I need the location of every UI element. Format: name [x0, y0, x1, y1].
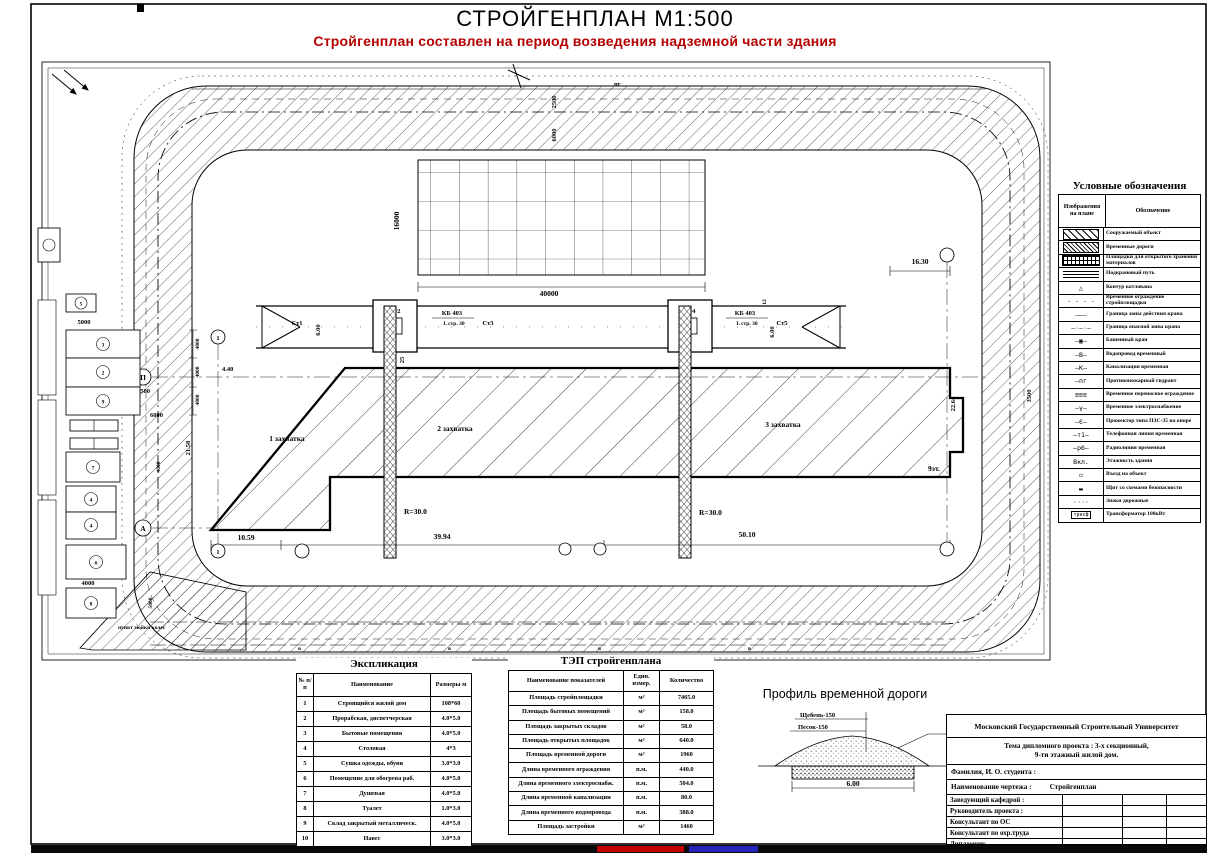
table-row: 8 Туалет 1.0*3.0: [297, 802, 471, 817]
dim-4000: 4000: [82, 580, 95, 587]
legend-symbol: —·—·—: [1059, 322, 1104, 334]
legend-table: Изображения на плане Обозначение Сооружа…: [1058, 194, 1201, 523]
project-theme: Тема дипломного проекта : 3-х секционный…: [947, 738, 1206, 765]
legend-label: Башенный кран: [1104, 335, 1200, 347]
table-row: Площадь бытовых помещений м² 158.0: [509, 706, 713, 720]
cell-indicator: Длина временного электроснабж.: [509, 778, 624, 791]
legend-label: Водопровод временный: [1104, 349, 1200, 361]
legend-label: Граница зоны действия крана: [1104, 308, 1200, 320]
cell-unit: п.м.: [624, 778, 660, 791]
col-quantity: Количество: [660, 671, 713, 691]
cell-name: Склад закрытый металлическ.: [314, 817, 431, 831]
table-row: 2 Прорабская, диспетчерская 4.0*5.0: [297, 712, 471, 727]
cell-quantity: 1960: [660, 749, 713, 762]
dim-4000: 4000: [195, 394, 201, 405]
col-indicator: Наименование показателей: [509, 671, 624, 691]
axis-bubble: [594, 543, 606, 555]
cell-size: 4.0*5.0: [431, 727, 471, 741]
cell-name: Строящийся жилой дом: [314, 697, 431, 711]
legend-symbol: [1059, 241, 1104, 253]
legend-label: Граница опасной зоны крана: [1104, 322, 1200, 334]
signature-field: [1063, 795, 1123, 805]
cell-quantity: 504.0: [660, 778, 713, 791]
legend-label: Канализация временная: [1104, 362, 1200, 374]
page-title: СТРОЙГЕНПЛАН М1:500: [0, 6, 1190, 32]
legend-label: Щит со схемами безопасности: [1104, 482, 1200, 494]
water-line-mark: в: [448, 646, 451, 652]
cell-unit: м²: [624, 692, 660, 705]
table-row: Площадь закрытых складов м² 58.0: [509, 721, 713, 735]
site-building-number: 7: [92, 466, 95, 472]
legend-symbol: Вкл.: [1059, 456, 1104, 468]
legend-symbol: ····: [1059, 496, 1104, 508]
legend-row: Сооружаемый объект: [1059, 228, 1200, 241]
col-name: Наименование: [314, 674, 431, 696]
legend-row: —пг Противопожарный гидрант: [1059, 375, 1200, 388]
legend-row: ▬ Щит со схемами безопасности: [1059, 482, 1200, 495]
dim-5000: 5000: [78, 319, 91, 326]
legend-row: ▭ Въезд на объект: [1059, 469, 1200, 482]
cell-name: Столовая: [314, 742, 431, 756]
cell-number: 3: [297, 727, 314, 741]
cell-number: 5: [297, 757, 314, 771]
cell-indicator: Длина временной канализации: [509, 792, 624, 805]
table-row: Площадь стройплощадки м² 7465.0: [509, 692, 713, 706]
legend-symbol: ———: [1059, 308, 1104, 320]
dim-12: 12: [762, 299, 768, 305]
legend-label: Временные дороги: [1104, 241, 1200, 253]
cell-unit: п.м.: [624, 792, 660, 805]
drawing-name-row: Наименование чертежа : Стройгенплан: [947, 780, 1206, 795]
dim-4000: 4000: [156, 461, 162, 472]
legend-header: Изображения на плане Обозначение: [1059, 195, 1200, 228]
tep-rows: Площадь стройплощадки м² 7465.0 Площадь …: [509, 692, 713, 834]
zone1-label: 1 захватка: [269, 434, 305, 443]
legend-label: Контур котлована: [1104, 282, 1200, 294]
legend-row: ≡≡≡ Временное переносное ограждение: [1059, 389, 1200, 402]
water-line-mark: в: [598, 646, 601, 652]
crane-radius-label: R=30.0: [404, 507, 427, 516]
signature-row: Руководитель проекта :: [947, 806, 1206, 817]
legend-label: Телефонная линия временная: [1104, 429, 1200, 441]
profile-layer1-label: Щебень-150: [800, 712, 835, 719]
cell-quantity: 388.0: [660, 806, 713, 819]
cell-quantity: 80.0: [660, 792, 713, 805]
dim-22.64: 22.64: [950, 396, 957, 411]
legend-rows: Сооружаемый объект Временные дороги Площ…: [1059, 228, 1200, 522]
site-building-number: 3: [102, 343, 105, 349]
signature-role: Дипломник: [947, 839, 1063, 845]
tep-table: ТЭП стройгенплана Наименование показател…: [508, 655, 714, 835]
dim-2500: 2500: [551, 96, 558, 109]
cell-name: Бытовые помещения: [314, 727, 431, 741]
dim-4000: 4000: [195, 338, 201, 349]
stamp-field: [1167, 839, 1206, 845]
explication-header: № п/п Наименование Размеры м: [297, 674, 471, 697]
axis-bubble: [940, 248, 954, 262]
legend-header-meaning: Обозначение: [1106, 195, 1200, 227]
legend-row: трнсф Трансформатор 100кВт: [1059, 509, 1200, 521]
crane-boom-label: L стр. 30: [443, 321, 465, 327]
cell-quantity: 640.0: [660, 735, 713, 748]
dim-6.00: 6.00: [315, 324, 322, 335]
cell-size: 4.0*5.0: [431, 712, 471, 726]
project-theme-line2: 9-ти этажный жилой дом.: [1035, 751, 1118, 760]
cell-name: Прорабская, диспетчерская: [314, 712, 431, 726]
dim-5000: 5000: [148, 597, 154, 608]
site-building-number: 8: [90, 602, 93, 608]
cell-number: 4: [297, 742, 314, 756]
stamp-field: [1167, 817, 1206, 827]
cell-indicator: Длина временного водопровода: [509, 806, 624, 819]
stamp-field: [1167, 795, 1206, 805]
signature-field: [1063, 817, 1123, 827]
dim-16000: 16000: [392, 211, 401, 230]
legend-symbol: —γ—: [1059, 402, 1104, 414]
cell-size: 3.0*3.0: [431, 832, 471, 846]
cell-name: Туалет: [314, 802, 431, 816]
cell-unit: п.м.: [624, 763, 660, 776]
drawing-name-value: Стройгенплан: [1050, 783, 1097, 791]
date-field: [1123, 839, 1167, 845]
cell-indicator: Площадь бытовых помещений: [509, 706, 624, 719]
dim-39.94: 39.94: [434, 532, 451, 541]
table-row: Длина временного электроснабж. п.м. 504.…: [509, 778, 713, 792]
crane-boom-label: L стр. 30: [736, 321, 758, 327]
table-row: Площадь застройки м² 1460: [509, 821, 713, 834]
legend-row: —т1— Телефонная линия временная: [1059, 429, 1200, 442]
col-number: № п/п: [297, 674, 314, 696]
dim-50.10: 50.10: [739, 530, 756, 539]
legend-panel: Условные обозначения Изображения на план…: [1058, 180, 1201, 523]
legend-label: Подкрановый путь: [1104, 268, 1200, 280]
cell-unit: м²: [624, 721, 660, 734]
table-row: 1 Строящийся жилой дом 108*60: [297, 697, 471, 712]
cell-name: Навес: [314, 832, 431, 846]
water-line-mark: в: [748, 646, 751, 652]
site-building-number: 4: [90, 498, 93, 504]
legend-label: Временное ограждение стройплощадки: [1104, 295, 1200, 307]
page-subtitle: Стройгенплан составлен на период возведе…: [0, 33, 1150, 49]
site-building-number: 4: [90, 524, 93, 530]
legend-row: —Є— Прожектор типа ПЗС-35 на опоре: [1059, 415, 1200, 428]
axis-bubble-a: А: [140, 524, 146, 533]
cell-quantity: 440.0: [660, 763, 713, 776]
road-profile-drawing: Профиль временной дороги Щебень-150 Песо…: [758, 687, 952, 792]
cell-unit: м²: [624, 735, 660, 748]
legend-row: —В— Водопровод временный: [1059, 349, 1200, 362]
cell-size: 4.0*5.0: [431, 817, 471, 831]
title-block: Московский Государственный Строительный …: [946, 714, 1207, 845]
cell-name: Душевая: [314, 787, 431, 801]
legend-label: Этажность здания: [1104, 456, 1200, 468]
university-name: Московский Государственный Строительный …: [947, 715, 1206, 738]
legend-label: Временное переносное ограждение: [1104, 389, 1200, 401]
legend-title: Условные обозначения: [1058, 180, 1201, 192]
cell-quantity: 1460: [660, 821, 713, 834]
legend-symbol: [1059, 268, 1104, 280]
cell-number: 10: [297, 832, 314, 846]
cell-size: 108*60: [431, 697, 471, 711]
legend-symbol: [1059, 255, 1104, 267]
site-building-number: 5: [80, 302, 83, 308]
date-field: [1123, 817, 1167, 827]
profile-title: Профиль временной дороги: [763, 687, 927, 701]
dim-4.40: 4.40: [222, 366, 233, 373]
table-row: 4 Столовая 4*3: [297, 742, 471, 757]
table-row: 9 Склад закрытый металлическ. 4.0*5.0: [297, 817, 471, 832]
site-building-number: 6: [95, 561, 98, 567]
signature-row: Дипломник: [947, 839, 1206, 845]
axis-bubble-1: 1: [216, 335, 219, 342]
legend-label: Радиолиния временная: [1104, 442, 1200, 454]
floors-label: 9эт.: [928, 464, 940, 473]
axis-bubble-1: 1: [216, 549, 219, 556]
crane-stop-label: Ст5: [776, 320, 788, 327]
bottom-blue-mark: [689, 846, 758, 852]
explication-table: Экспликация № п/п Наименование Размеры м…: [296, 658, 472, 847]
cell-quantity: 7465.0: [660, 692, 713, 705]
cell-size: 4*3: [431, 742, 471, 756]
legend-symbol: —т1—: [1059, 429, 1104, 441]
legend-row: —·—·— Граница опасной зоны крана: [1059, 322, 1200, 335]
legend-row: —рб— Радиолиния временная: [1059, 442, 1200, 455]
tep-header: Наименование показателей Един. измер. Ко…: [509, 671, 713, 692]
legend-row: Площадки для открытого хранения материал…: [1059, 255, 1200, 268]
cell-number: 9: [297, 817, 314, 831]
signature-field: [1063, 839, 1123, 845]
zone3-label: 3 захватка: [765, 420, 801, 429]
crane-type-label: КБ 403: [442, 310, 463, 317]
cell-indicator: Площадь открытых площадок: [509, 735, 624, 748]
crane-radius-label: R=30.0: [699, 508, 722, 517]
axis-bubble-p: П: [140, 373, 146, 382]
drawing-name-label: Наименование чертежа :: [951, 783, 1032, 791]
legend-symbol: —▣—: [1059, 335, 1104, 347]
dim-6000: 6000: [551, 129, 558, 142]
cell-quantity: 58.0: [660, 721, 713, 734]
legend-symbol: ≡≡≡: [1059, 389, 1104, 401]
cell-unit: м²: [624, 821, 660, 834]
cell-unit: п.м.: [624, 806, 660, 819]
table-row: Длина временной канализации п.м. 80.0: [509, 792, 713, 806]
cell-number: 8: [297, 802, 314, 816]
axis-bubble: [940, 542, 954, 556]
cell-indicator: Площадь застройки: [509, 821, 624, 834]
table-row: Длина временного ограждения п.м. 440.0: [509, 763, 713, 777]
col-unit: Един. измер.: [624, 671, 660, 691]
cell-name: Помещение для обогрева раб.: [314, 772, 431, 786]
cell-number: 2: [297, 712, 314, 726]
cell-unit: м²: [624, 706, 660, 719]
legend-symbol: - - - -: [1059, 295, 1104, 307]
project-theme-line1: Тема дипломного проекта : 3-х секционный…: [1004, 742, 1148, 751]
legend-row: ——— Граница зоны действия крана: [1059, 308, 1200, 321]
dim-25: 25: [399, 356, 406, 363]
tep-title: ТЭП стройгенплана: [508, 655, 714, 667]
signature-role: Консультант по охр.труда: [947, 828, 1063, 838]
table-row: 6 Помещение для обогрева раб. 4.0*5.0: [297, 772, 471, 787]
profile-layer2-label: Песок-150: [798, 724, 828, 731]
table-row: Площадь открытых площадок м² 640.0: [509, 735, 713, 749]
stamp-field: [1167, 806, 1206, 816]
signature-role: Руководитель проекта :: [947, 806, 1063, 816]
table-row: Площадь временной дороги м² 1960: [509, 749, 713, 763]
crane-stop-label: Ст3: [482, 320, 494, 327]
cell-number: 7: [297, 787, 314, 801]
cell-name: Сушка одежды, обуви: [314, 757, 431, 771]
cell-indicator: Площадь закрытых складов: [509, 721, 624, 734]
signature-rows: Заведующий кафедрой : Руководитель проек…: [947, 795, 1206, 845]
legend-row: - - - - Временное ограждение стройплощад…: [1059, 295, 1200, 308]
legend-symbol: —В—: [1059, 349, 1104, 361]
dim-21.58: 21.58: [185, 440, 192, 455]
legend-symbol: —пг: [1059, 375, 1104, 387]
legend-label: Площадки для открытого хранения материал…: [1104, 255, 1200, 267]
signature-row: Консультант по охр.труда: [947, 828, 1206, 839]
wheel-wash-label: пункт мойки колес: [118, 624, 166, 631]
cell-number: 6: [297, 772, 314, 786]
explication-rows: 1 Строящийся жилой дом 108*60 2 Прорабск…: [297, 697, 471, 846]
site-building-number: 2: [102, 371, 105, 377]
signature-field: [1063, 806, 1123, 816]
stamp-field: [1167, 828, 1206, 838]
legend-row: —К— Канализация временная: [1059, 362, 1200, 375]
legend-row: Подкрановый путь: [1059, 268, 1200, 281]
signature-row: Консультант по ОС: [947, 817, 1206, 828]
legend-symbol: —К—: [1059, 362, 1104, 374]
student-name-row: Фамилия, И. О. студента :: [947, 765, 1206, 780]
axis-bubble: [295, 544, 309, 558]
cell-size: 1.0*3.0: [431, 802, 471, 816]
dim-16.30: 16.30: [912, 257, 929, 266]
drawing-sheet: пг пг в в в в 40000 16000 2500 6000 1 за…: [0, 0, 1212, 853]
legend-row: —▣— Башенный кран: [1059, 335, 1200, 348]
cell-indicator: Длина временного ограждения: [509, 763, 624, 776]
legend-row: Временные дороги: [1059, 241, 1200, 254]
legend-label: Знаки дорожные: [1104, 496, 1200, 508]
signature-role: Консультант по ОС: [947, 817, 1063, 827]
cell-indicator: Площадь временной дороги: [509, 749, 624, 762]
legend-row: Вкл. Этажность здания: [1059, 456, 1200, 469]
explication-title: Экспликация: [296, 658, 472, 670]
legend-label: Трансформатор 100кВт: [1104, 509, 1200, 521]
date-field: [1123, 806, 1167, 816]
cell-unit: м²: [624, 749, 660, 762]
table-row: 5 Сушка одежды, обуви 3.0*3.0: [297, 757, 471, 772]
crane-stop-label: Ст1: [291, 320, 302, 327]
legend-symbol: —рб—: [1059, 442, 1104, 454]
signature-role: Заведующий кафедрой :: [947, 795, 1063, 805]
cell-size: 4.0*5.0: [431, 787, 471, 801]
legend-label: Сооружаемый объект: [1104, 228, 1200, 240]
hydrant-label: пг: [614, 81, 621, 88]
dim-10.59: 10.59: [238, 533, 255, 542]
legend-symbol: ▭: [1059, 469, 1104, 481]
date-field: [1123, 795, 1167, 805]
dim-3500: 3500: [1026, 390, 1033, 403]
col-size: Размеры м: [431, 674, 471, 696]
zone2-label: 2 захватка: [437, 424, 473, 433]
legend-label: Противопожарный гидрант: [1104, 375, 1200, 387]
legend-label: Прожектор типа ПЗС-35 на опоре: [1104, 415, 1200, 427]
table-row: 7 Душевая 4.0*5.0: [297, 787, 471, 802]
legend-symbol: △: [1059, 282, 1104, 294]
profile-width-dim: 6.00: [846, 779, 859, 788]
table-row: Длина временного водопровода п.м. 388.0: [509, 806, 713, 820]
legend-header-symbols: Изображения на плане: [1059, 195, 1106, 227]
signature-field: [1063, 828, 1123, 838]
legend-symbol: [1059, 228, 1104, 240]
cell-quantity: 158.0: [660, 706, 713, 719]
legend-label: Въезд на объект: [1104, 469, 1200, 481]
dim-6000: 6000: [150, 412, 163, 419]
legend-row: —γ— Временное электроснабжение: [1059, 402, 1200, 415]
legend-row: △ Контур котлована: [1059, 282, 1200, 295]
water-line-mark: в: [298, 646, 301, 652]
legend-row: ···· Знаки дорожные: [1059, 496, 1200, 509]
site-building-number: 9: [102, 400, 105, 406]
table-row: 10 Навес 3.0*3.0: [297, 832, 471, 846]
legend-symbol: ▬: [1059, 482, 1104, 494]
legend-symbol: —Є—: [1059, 415, 1104, 427]
signature-row: Заведующий кафедрой :: [947, 795, 1206, 806]
cell-size: 3.0*3.0: [431, 757, 471, 771]
dim-6.00: 6.00: [769, 326, 776, 337]
crane-type-label: КБ 403: [735, 310, 756, 317]
cell-number: 1: [297, 697, 314, 711]
cell-indicator: Площадь стройплощадки: [509, 692, 624, 705]
bottom-red-mark: [597, 846, 684, 852]
dim-40000: 40000: [540, 289, 559, 298]
cell-size: 4.0*5.0: [431, 772, 471, 786]
legend-symbol: трнсф: [1059, 509, 1104, 521]
date-field: [1123, 828, 1167, 838]
axis-bubble: [559, 543, 571, 555]
legend-label: Временное электроснабжение: [1104, 402, 1200, 414]
dim-4000: 4000: [195, 366, 201, 377]
table-row: 3 Бытовые помещения 4.0*5.0: [297, 727, 471, 742]
